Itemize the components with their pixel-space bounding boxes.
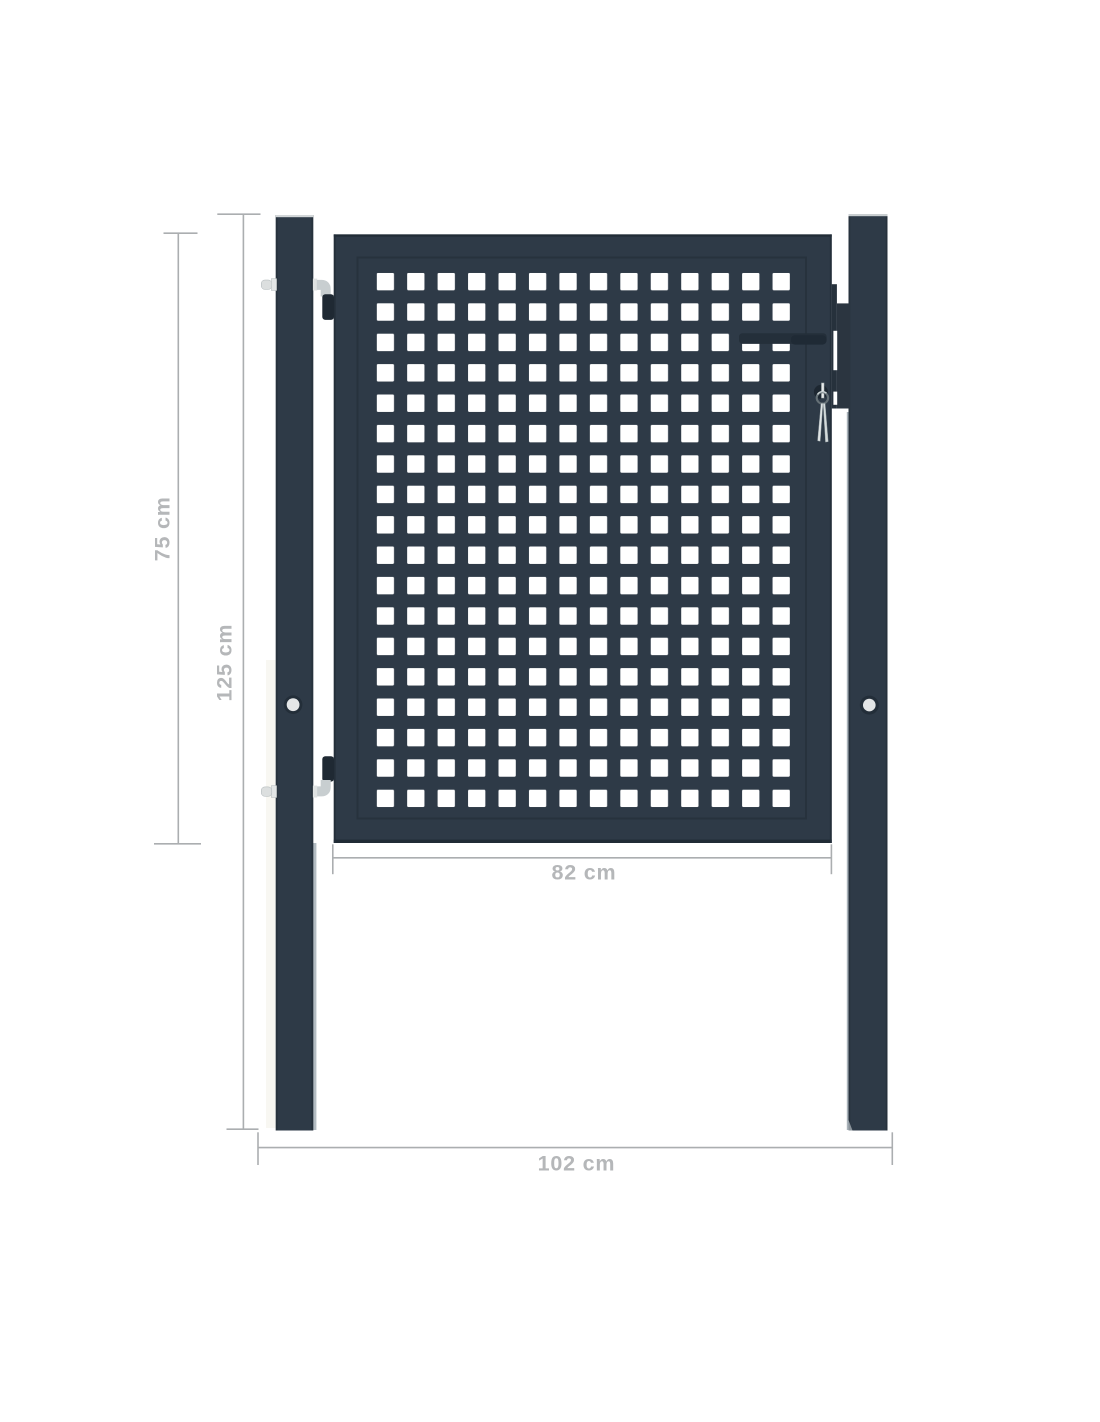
svg-text:125 cm: 125 cm: [212, 624, 236, 702]
svg-text:75 cm: 75 cm: [151, 496, 175, 561]
svg-text:82 cm: 82 cm: [552, 860, 617, 884]
svg-text:102 cm: 102 cm: [538, 1151, 616, 1175]
